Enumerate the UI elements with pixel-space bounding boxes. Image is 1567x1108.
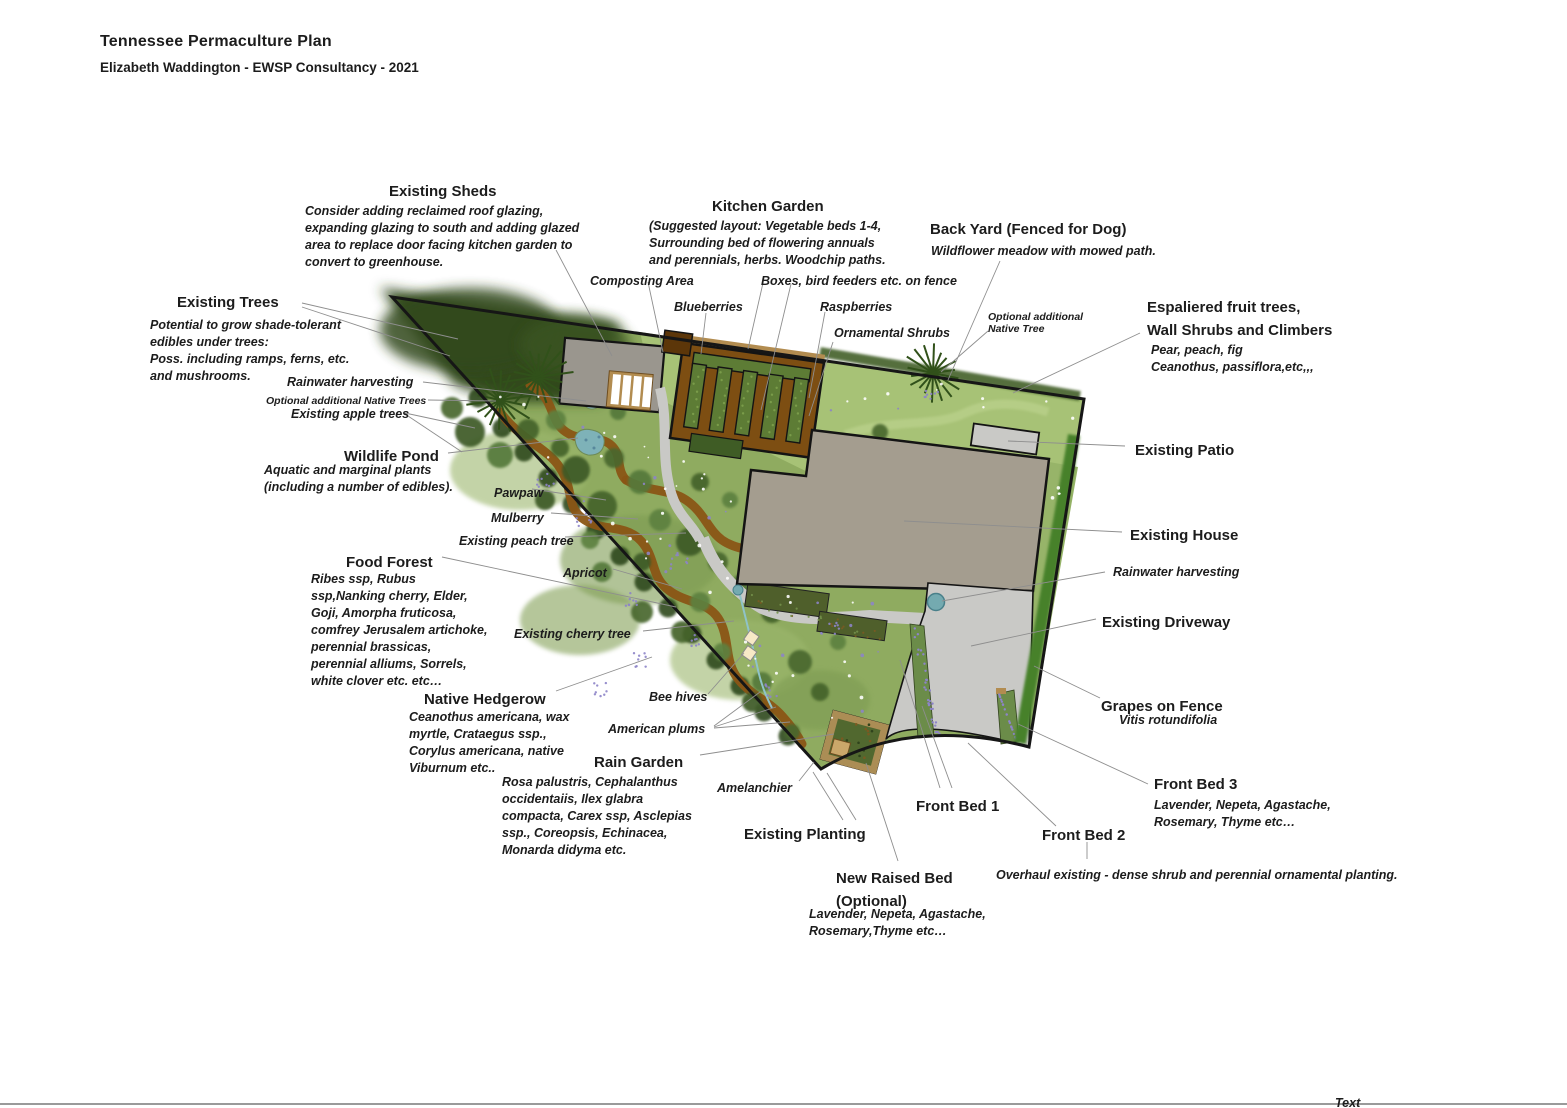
label-existing-cherry-tree: Existing cherry tree — [514, 626, 631, 643]
tree-canopy — [628, 470, 652, 494]
tree-canopy — [604, 448, 624, 468]
leader-line — [748, 283, 763, 349]
tree-canopy — [633, 553, 651, 571]
label-rainwater-harvesting-right: Rainwater harvesting — [1113, 564, 1239, 581]
label-apricot: Apricot — [563, 565, 607, 582]
label-optional-native-tree-right: Optional additionalNative Tree — [988, 311, 1083, 335]
label-front-bed-1-heading: Front Bed 1 — [916, 795, 999, 818]
cutoff-text-label: Text — [1335, 1095, 1360, 1108]
page-title: Tennessee Permaculture Plan — [100, 33, 332, 51]
bed-tan-edge — [996, 688, 1006, 694]
label-existing-driveway-heading: Existing Driveway — [1102, 611, 1230, 634]
label-rain-garden-note: Rosa palustris, Cephalanthusoccidentaiis… — [502, 774, 692, 859]
label-new-raised-bed-note: Lavender, Nepeta, Agastache,Rosemary,Thy… — [809, 906, 986, 940]
label-grapes-note: Vitis rotundifolia — [1119, 712, 1217, 729]
leader-line — [799, 762, 814, 781]
page-subtitle: Elizabeth Waddington - EWSP Consultancy … — [100, 60, 419, 75]
tree-canopy — [830, 634, 846, 650]
leader-line — [556, 657, 652, 691]
rain-barrel-left — [733, 585, 743, 595]
leader-line — [813, 772, 843, 820]
tree-canopy — [788, 650, 812, 674]
label-mulberry: Mulberry — [491, 510, 544, 527]
label-wildlife-pond-note: Aquatic and marginal plants(including a … — [264, 462, 453, 496]
label-existing-trees-heading: Existing Trees — [177, 291, 279, 314]
tree-canopy — [562, 456, 590, 484]
rain-barrel-right — [928, 594, 945, 611]
label-ornamental-shrubs: Ornamental Shrubs — [834, 325, 950, 342]
label-native-hedgerow-heading: Native Hedgerow — [424, 688, 546, 711]
permaculture-plan-page: Tennessee Permaculture Plan Elizabeth Wa… — [0, 0, 1567, 1108]
tree-canopy — [546, 410, 566, 430]
label-existing-planting-heading: Existing Planting — [744, 823, 866, 846]
label-american-plums: American plums — [608, 721, 705, 738]
tree-canopy — [722, 492, 738, 508]
plan-map-canvas — [0, 0, 1567, 1108]
label-native-hedgerow-note: Ceanothus americana, waxmyrtle, Crataegu… — [409, 709, 569, 777]
label-existing-house-heading: Existing House — [1130, 524, 1238, 547]
label-espaliered-heading: Espaliered fruit trees,Wall Shrubs and C… — [1147, 296, 1332, 342]
tree-canopy — [649, 509, 671, 531]
label-existing-sheds-note: Consider adding reclaimed roof glazing,e… — [305, 203, 579, 271]
tree-canopy — [551, 439, 569, 457]
label-front-bed-3-heading: Front Bed 3 — [1154, 773, 1237, 796]
label-rainwater-harvesting-left: Rainwater harvesting — [287, 374, 413, 391]
leader-line — [827, 773, 856, 820]
label-front-bed-2-heading: Front Bed 2 — [1042, 824, 1125, 847]
leader-line — [1034, 666, 1100, 698]
label-boxes-bird-feeders: Boxes, bird feeders etc. on fence — [761, 273, 957, 290]
label-back-yard-heading: Back Yard (Fenced for Dog) — [930, 218, 1126, 241]
existing-sheds-shape — [559, 338, 664, 412]
label-blueberries: Blueberries — [674, 299, 743, 316]
leader-line — [1013, 333, 1140, 393]
label-amelanchier: Amelanchier — [717, 780, 792, 797]
label-raspberries: Raspberries — [820, 299, 892, 316]
tree-canopy — [581, 531, 599, 549]
leader-line — [1018, 724, 1148, 784]
label-food-forest-note: Ribes ssp, Rubusssp,Nanking cherry, Elde… — [311, 571, 487, 690]
label-rain-garden-heading: Rain Garden — [594, 751, 683, 774]
leader-line — [866, 763, 898, 861]
label-composting-area: Composting Area — [590, 273, 694, 290]
label-kitchen-garden-heading: Kitchen Garden — [712, 195, 824, 218]
label-espaliered-note: Pear, peach, figCeanothus, passiflora,et… — [1151, 342, 1314, 376]
label-existing-peach-tree: Existing peach tree — [459, 533, 574, 550]
label-kitchen-garden-note: (Suggested layout: Vegetable beds 1-4,Su… — [649, 218, 886, 269]
label-back-yard-note: Wildflower meadow with mowed path. — [931, 243, 1156, 260]
label-front-bed-3-note: Lavender, Nepeta, Agastache,Rosemary, Th… — [1154, 797, 1331, 831]
label-bee-hives: Bee hives — [649, 689, 707, 706]
tree-canopy — [811, 683, 829, 701]
tree-canopy — [631, 601, 653, 623]
label-existing-apple-trees: Existing apple trees — [291, 406, 409, 423]
tree-canopy — [690, 592, 710, 612]
bottom-page-rule — [0, 1103, 1567, 1105]
label-existing-sheds-heading: Existing Sheds — [389, 180, 497, 203]
tree-canopy — [455, 417, 485, 447]
label-existing-patio-heading: Existing Patio — [1135, 439, 1234, 462]
tree-canopy — [691, 473, 709, 491]
label-pawpaw: Pawpaw — [494, 485, 543, 502]
label-overhaul-note: Overhaul existing - dense shrub and pere… — [996, 867, 1397, 884]
